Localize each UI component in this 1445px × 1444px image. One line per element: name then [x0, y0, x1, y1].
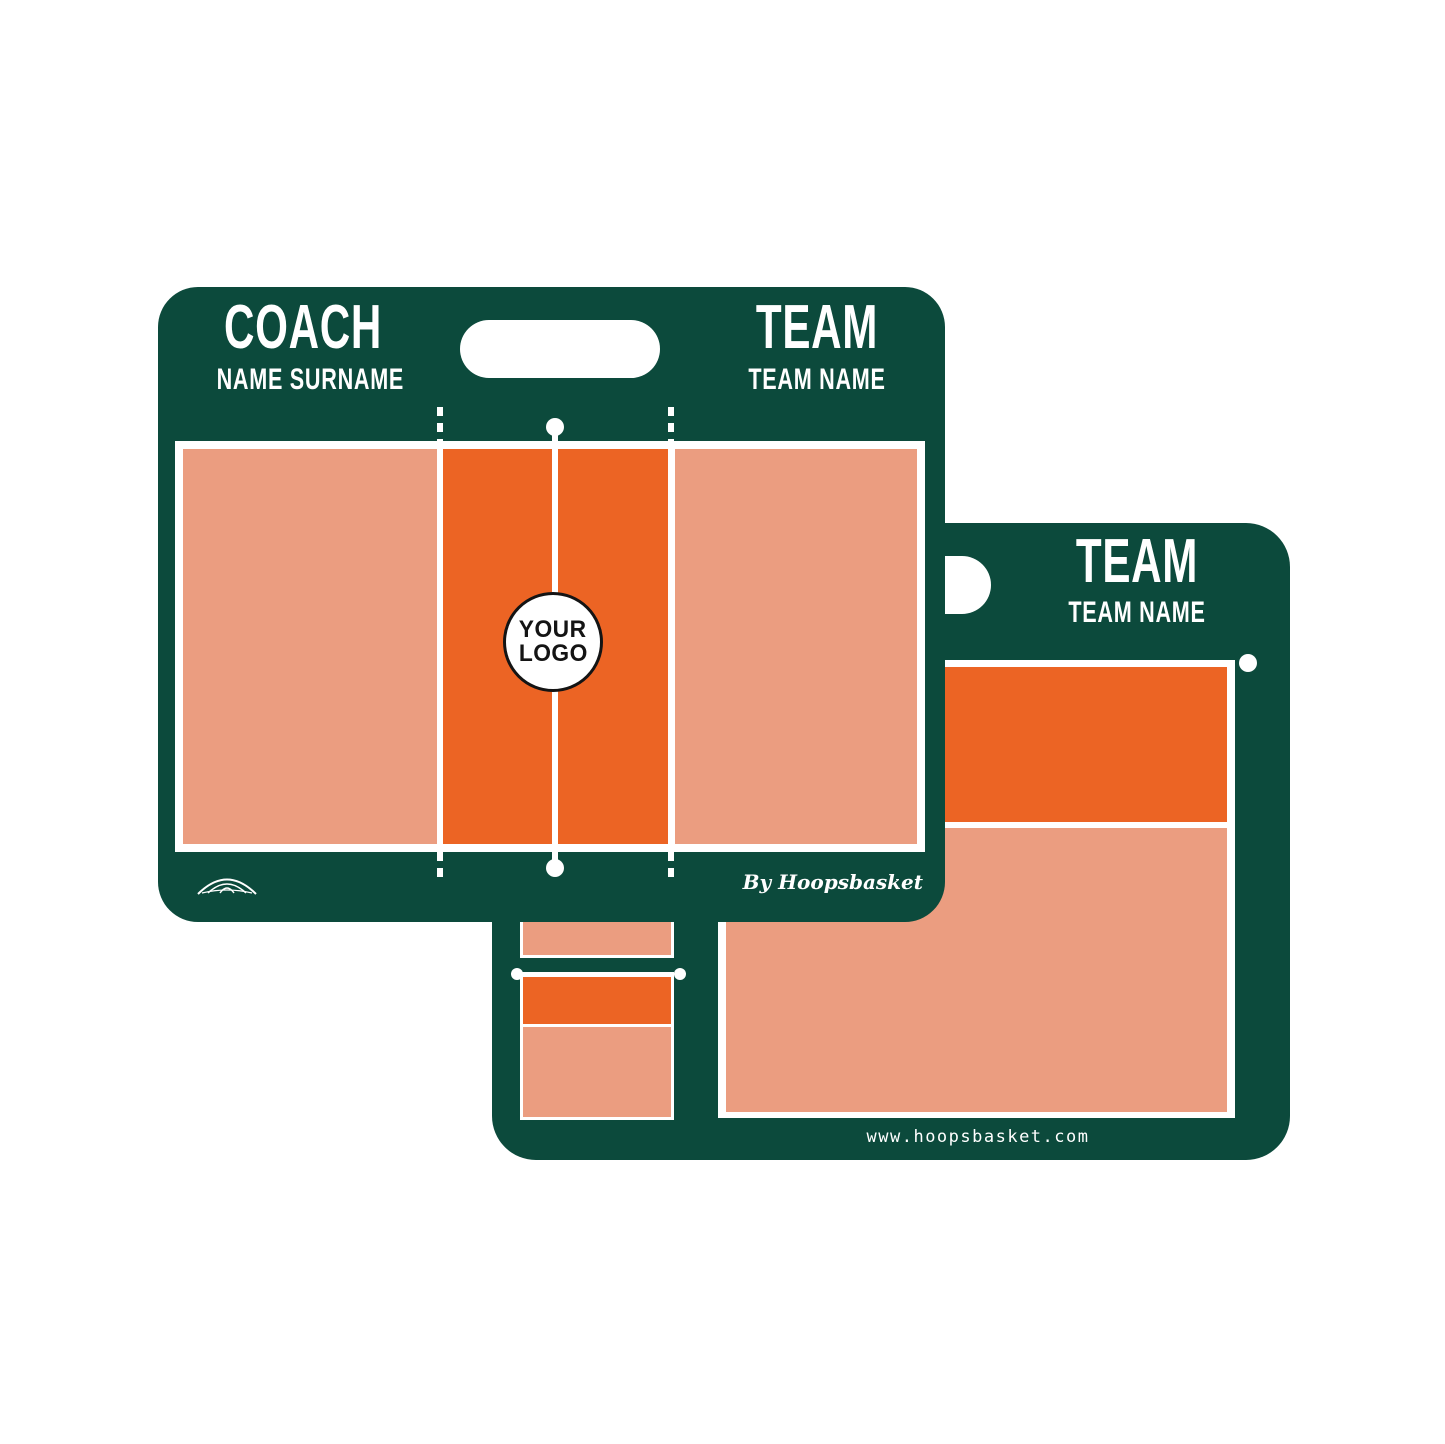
handle-cutout-icon	[460, 320, 660, 378]
logo-line2: LOGO	[518, 642, 587, 666]
small-half-court-lower	[520, 972, 674, 1120]
net-post-dot	[546, 859, 564, 877]
logo-line1: YOUR	[519, 618, 587, 642]
attack-line-dashes	[437, 407, 443, 441]
net-post-dot	[511, 968, 523, 980]
coach-heading: COACH	[221, 297, 384, 359]
net-post-dot	[546, 418, 564, 436]
court-right-back-zone	[675, 449, 917, 844]
website-url: www.hoopsbasket.com	[818, 1127, 1138, 1147]
front-board: COACH NAME SURNAME TEAM TEAM NAME YOUR L…	[158, 287, 945, 922]
small-court-front-zone	[523, 977, 671, 1024]
byline: By Hoopsbasket	[663, 870, 923, 894]
attack-line-dashes	[437, 852, 443, 884]
your-logo-placeholder: YOUR LOGO	[503, 592, 603, 692]
back-team-heading: TEAM	[1042, 531, 1232, 593]
net-post-dot	[674, 968, 686, 980]
back-team-subheading: TEAM NAME	[1036, 598, 1238, 628]
basketball-icon	[196, 873, 258, 897]
front-team-subheading: TEAM NAME	[731, 365, 904, 395]
small-court-back-zone	[523, 1027, 671, 1117]
attack-line-dashes	[668, 407, 674, 441]
net-post-dot	[1239, 654, 1257, 672]
front-team-heading: TEAM	[735, 297, 898, 359]
product-mockup: TEAM TEAM NAME www.hoopsbasket.com COACH…	[0, 0, 1445, 1444]
court-left-back-zone	[183, 449, 437, 844]
coach-subheading: NAME SURNAME	[217, 365, 390, 395]
